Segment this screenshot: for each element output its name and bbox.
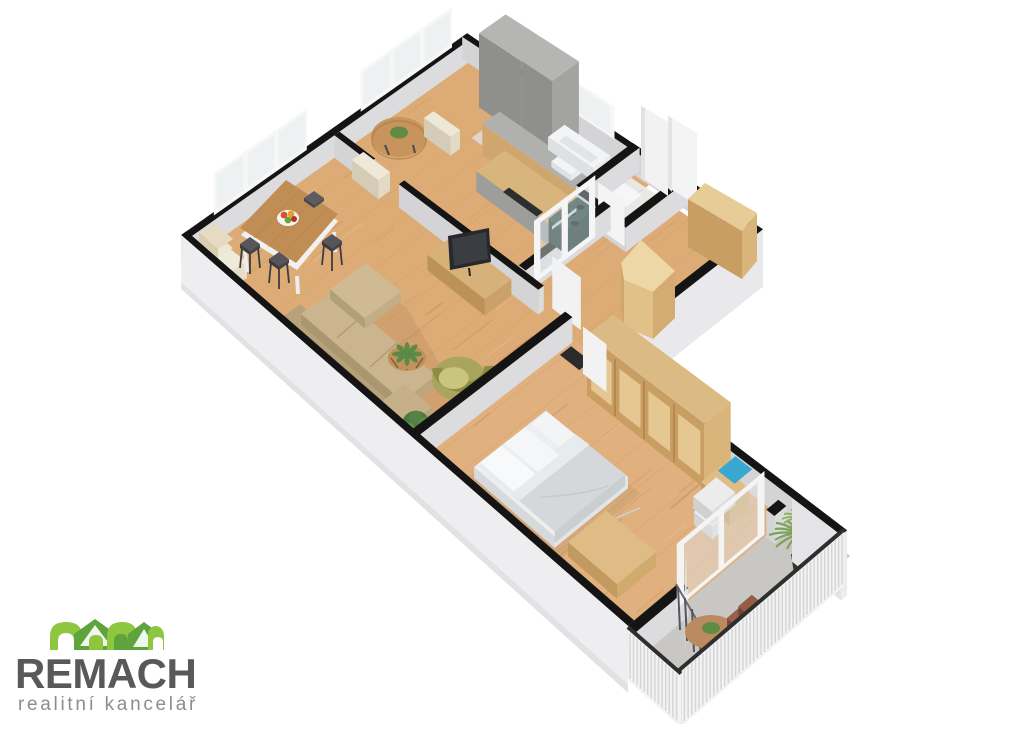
svg-text:realitní kancelář: realitní kancelář (18, 694, 198, 715)
svg-text:REMACH: REMACH (15, 650, 196, 697)
